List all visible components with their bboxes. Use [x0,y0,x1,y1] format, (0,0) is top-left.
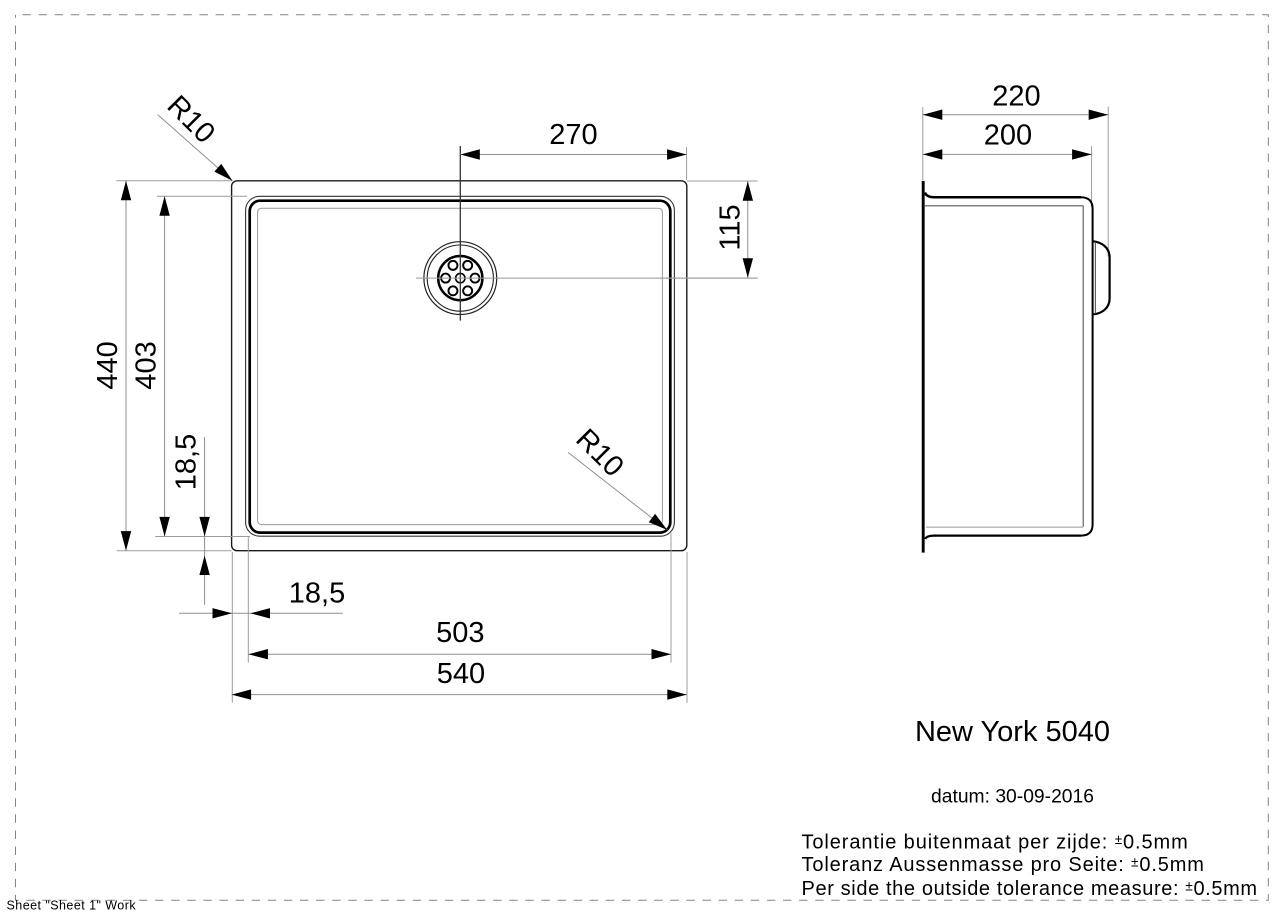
svg-text:540: 540 [437,658,485,690]
svg-text:datum: 30-09-2016: datum: 30-09-2016 [931,786,1094,807]
svg-text:200: 200 [984,119,1032,151]
svg-text:Tolerantie buitenmaat per zijd: Tolerantie buitenmaat per zijde: ±0.5mm [802,832,1189,854]
svg-text:403: 403 [131,341,163,389]
svg-text:Per side the outside tolerance: Per side the outside tolerance measure: … [802,878,1258,900]
svg-text:Toleranz Aussenmasse pro Seite: Toleranz Aussenmasse pro Seite: ±0.5mm [802,854,1205,876]
svg-text:18,5: 18,5 [289,577,345,609]
svg-text:R10: R10 [569,423,629,483]
svg-text:115: 115 [715,204,747,250]
svg-text:220: 220 [992,81,1040,113]
svg-text:270: 270 [549,119,597,151]
svg-text:New York 5040: New York 5040 [915,716,1110,748]
svg-text:18,5: 18,5 [171,434,203,490]
svg-text:503: 503 [436,617,484,649]
svg-text:440: 440 [92,341,124,389]
svg-text:Sheet "Sheet 1" Work: Sheet "Sheet 1" Work [7,899,137,913]
svg-text:R10: R10 [161,90,221,150]
